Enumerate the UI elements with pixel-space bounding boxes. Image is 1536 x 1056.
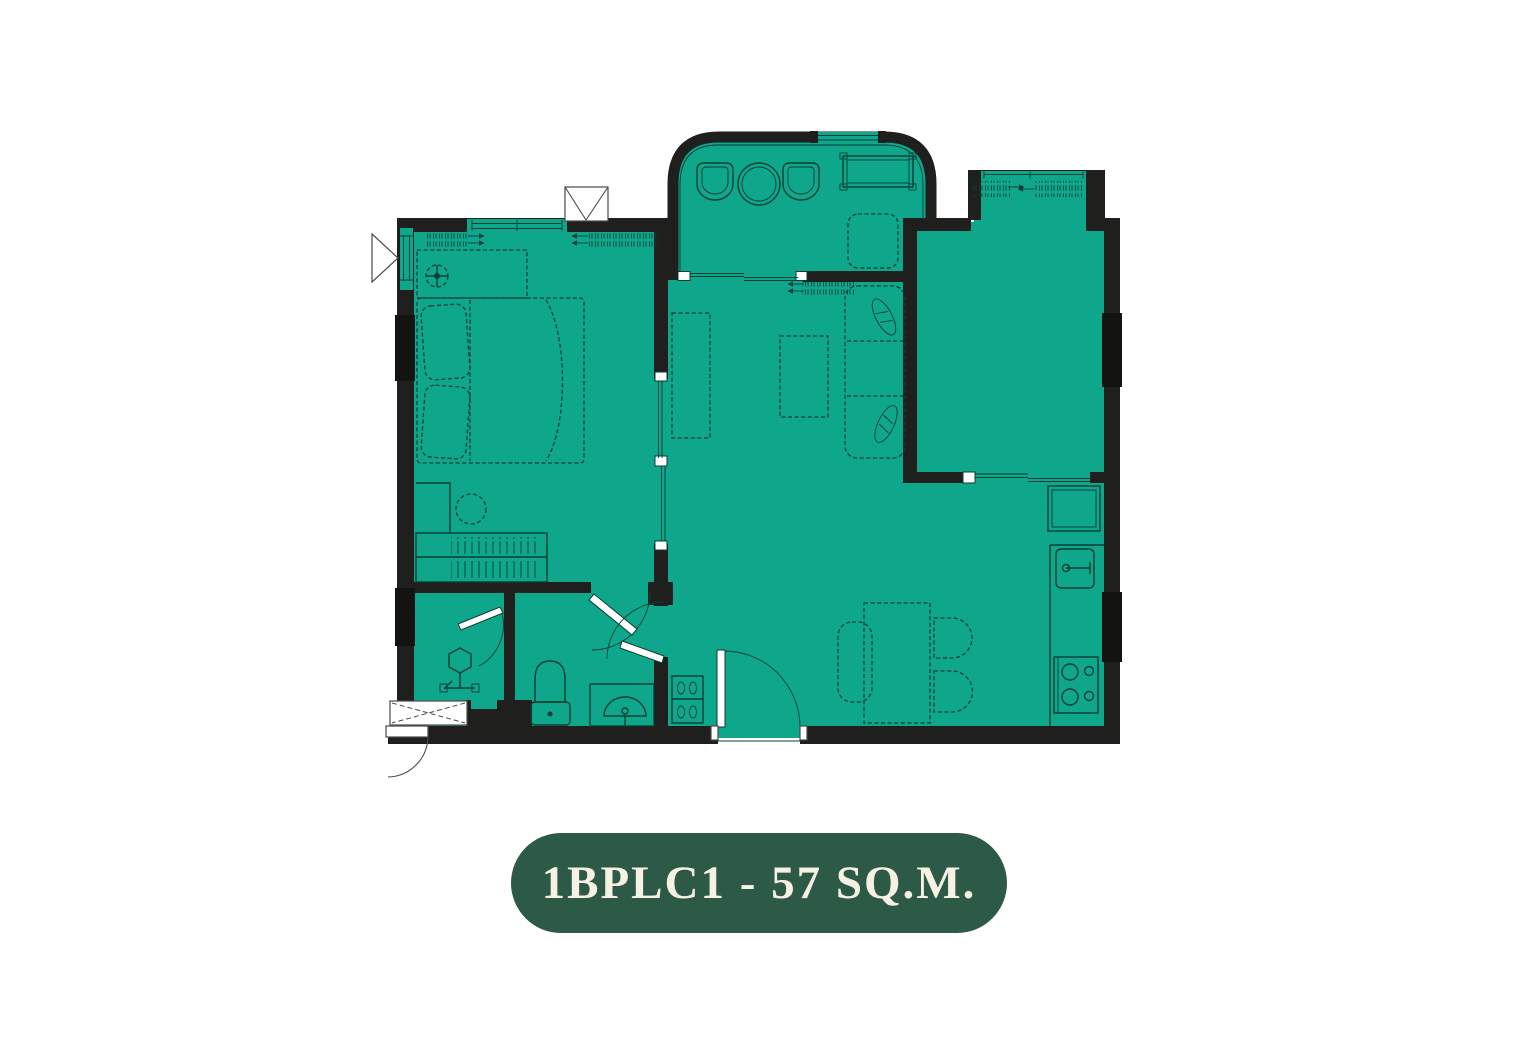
column	[1102, 313, 1122, 387]
window	[981, 171, 1086, 179]
floor-plan-page: 1BPLC1 - 57 SQ.M.	[0, 0, 1536, 1056]
window	[467, 219, 567, 232]
wardrobe-hatch	[1034, 181, 1082, 197]
unit-label-text: 1BPLC1 - 57 SQ.M.	[542, 856, 977, 910]
window	[400, 228, 413, 290]
wardrobe-hatch	[425, 231, 469, 247]
unit-label-badge: 1BPLC1 - 57 SQ.M.	[511, 833, 1007, 933]
column	[1102, 592, 1122, 662]
window-annotation	[372, 234, 398, 282]
window	[810, 131, 886, 143]
column	[395, 588, 415, 646]
wardrobe-hatch	[589, 231, 658, 247]
wardrobe-hatch	[802, 281, 854, 296]
column	[395, 315, 415, 381]
window-annotation	[565, 187, 608, 221]
wardrobe-hatch	[973, 181, 1010, 197]
